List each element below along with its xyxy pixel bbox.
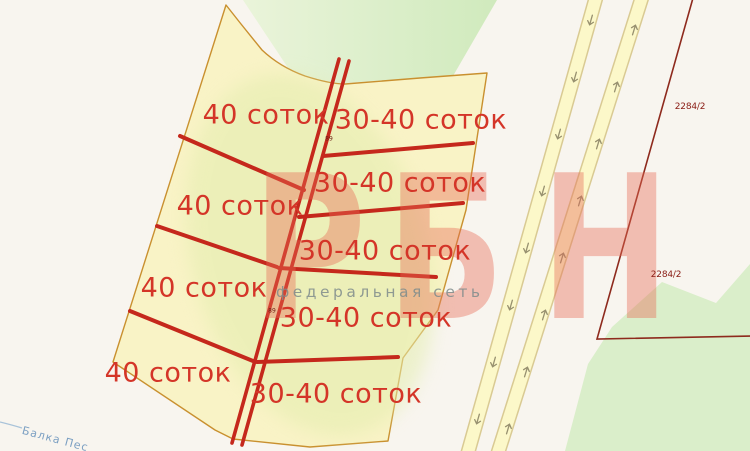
parcel-label-right-5: 30-40 соток bbox=[250, 379, 422, 410]
parcel-label-left-1: 40 соток bbox=[203, 100, 330, 131]
road-number-label: 89 bbox=[268, 308, 276, 315]
map-canvas[interactable]: Р Б Н федеральная сеть 40 соток 40 соток… bbox=[0, 0, 750, 451]
watermark-letter: Н bbox=[540, 150, 671, 350]
stream-line bbox=[0, 422, 22, 428]
parcel-label-left-2: 40 соток bbox=[177, 191, 304, 222]
parcel-label-left-4: 40 соток bbox=[105, 358, 232, 389]
watermark-tagline: федеральная сеть bbox=[276, 283, 484, 301]
cadastral-number-label: 2284/2 bbox=[651, 270, 681, 280]
parcel-label-left-3: 40 соток bbox=[141, 273, 268, 304]
cadastral-number-label: 2284/2 bbox=[675, 102, 705, 112]
parcel-label-right-1: 30-40 соток bbox=[335, 105, 507, 136]
parcel-label-right-2: 30-40 соток bbox=[314, 168, 486, 199]
road-number-label: 89 bbox=[325, 136, 333, 143]
parcel-label-right-4: 30-40 соток bbox=[280, 303, 452, 334]
parcel-label-right-3: 30-40 соток bbox=[299, 236, 471, 267]
